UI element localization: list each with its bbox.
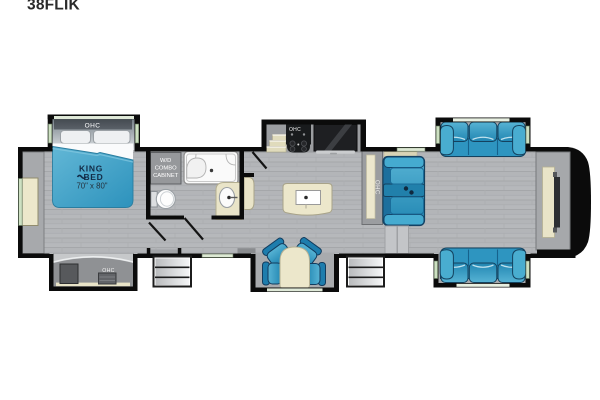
svg-text:OHC: OHC xyxy=(85,123,101,130)
svg-text:CABINET: CABINET xyxy=(153,173,179,179)
svg-text:OHC: OHC xyxy=(289,127,301,133)
svg-text:BED: BED xyxy=(83,172,103,182)
svg-text:COMBO: COMBO xyxy=(155,166,177,172)
svg-text:OHC: OHC xyxy=(374,180,380,195)
svg-text:38FLIK: 38FLIK xyxy=(27,0,80,14)
svg-text:70" x 80": 70" x 80" xyxy=(76,182,107,191)
svg-text:W/D: W/D xyxy=(160,158,171,164)
